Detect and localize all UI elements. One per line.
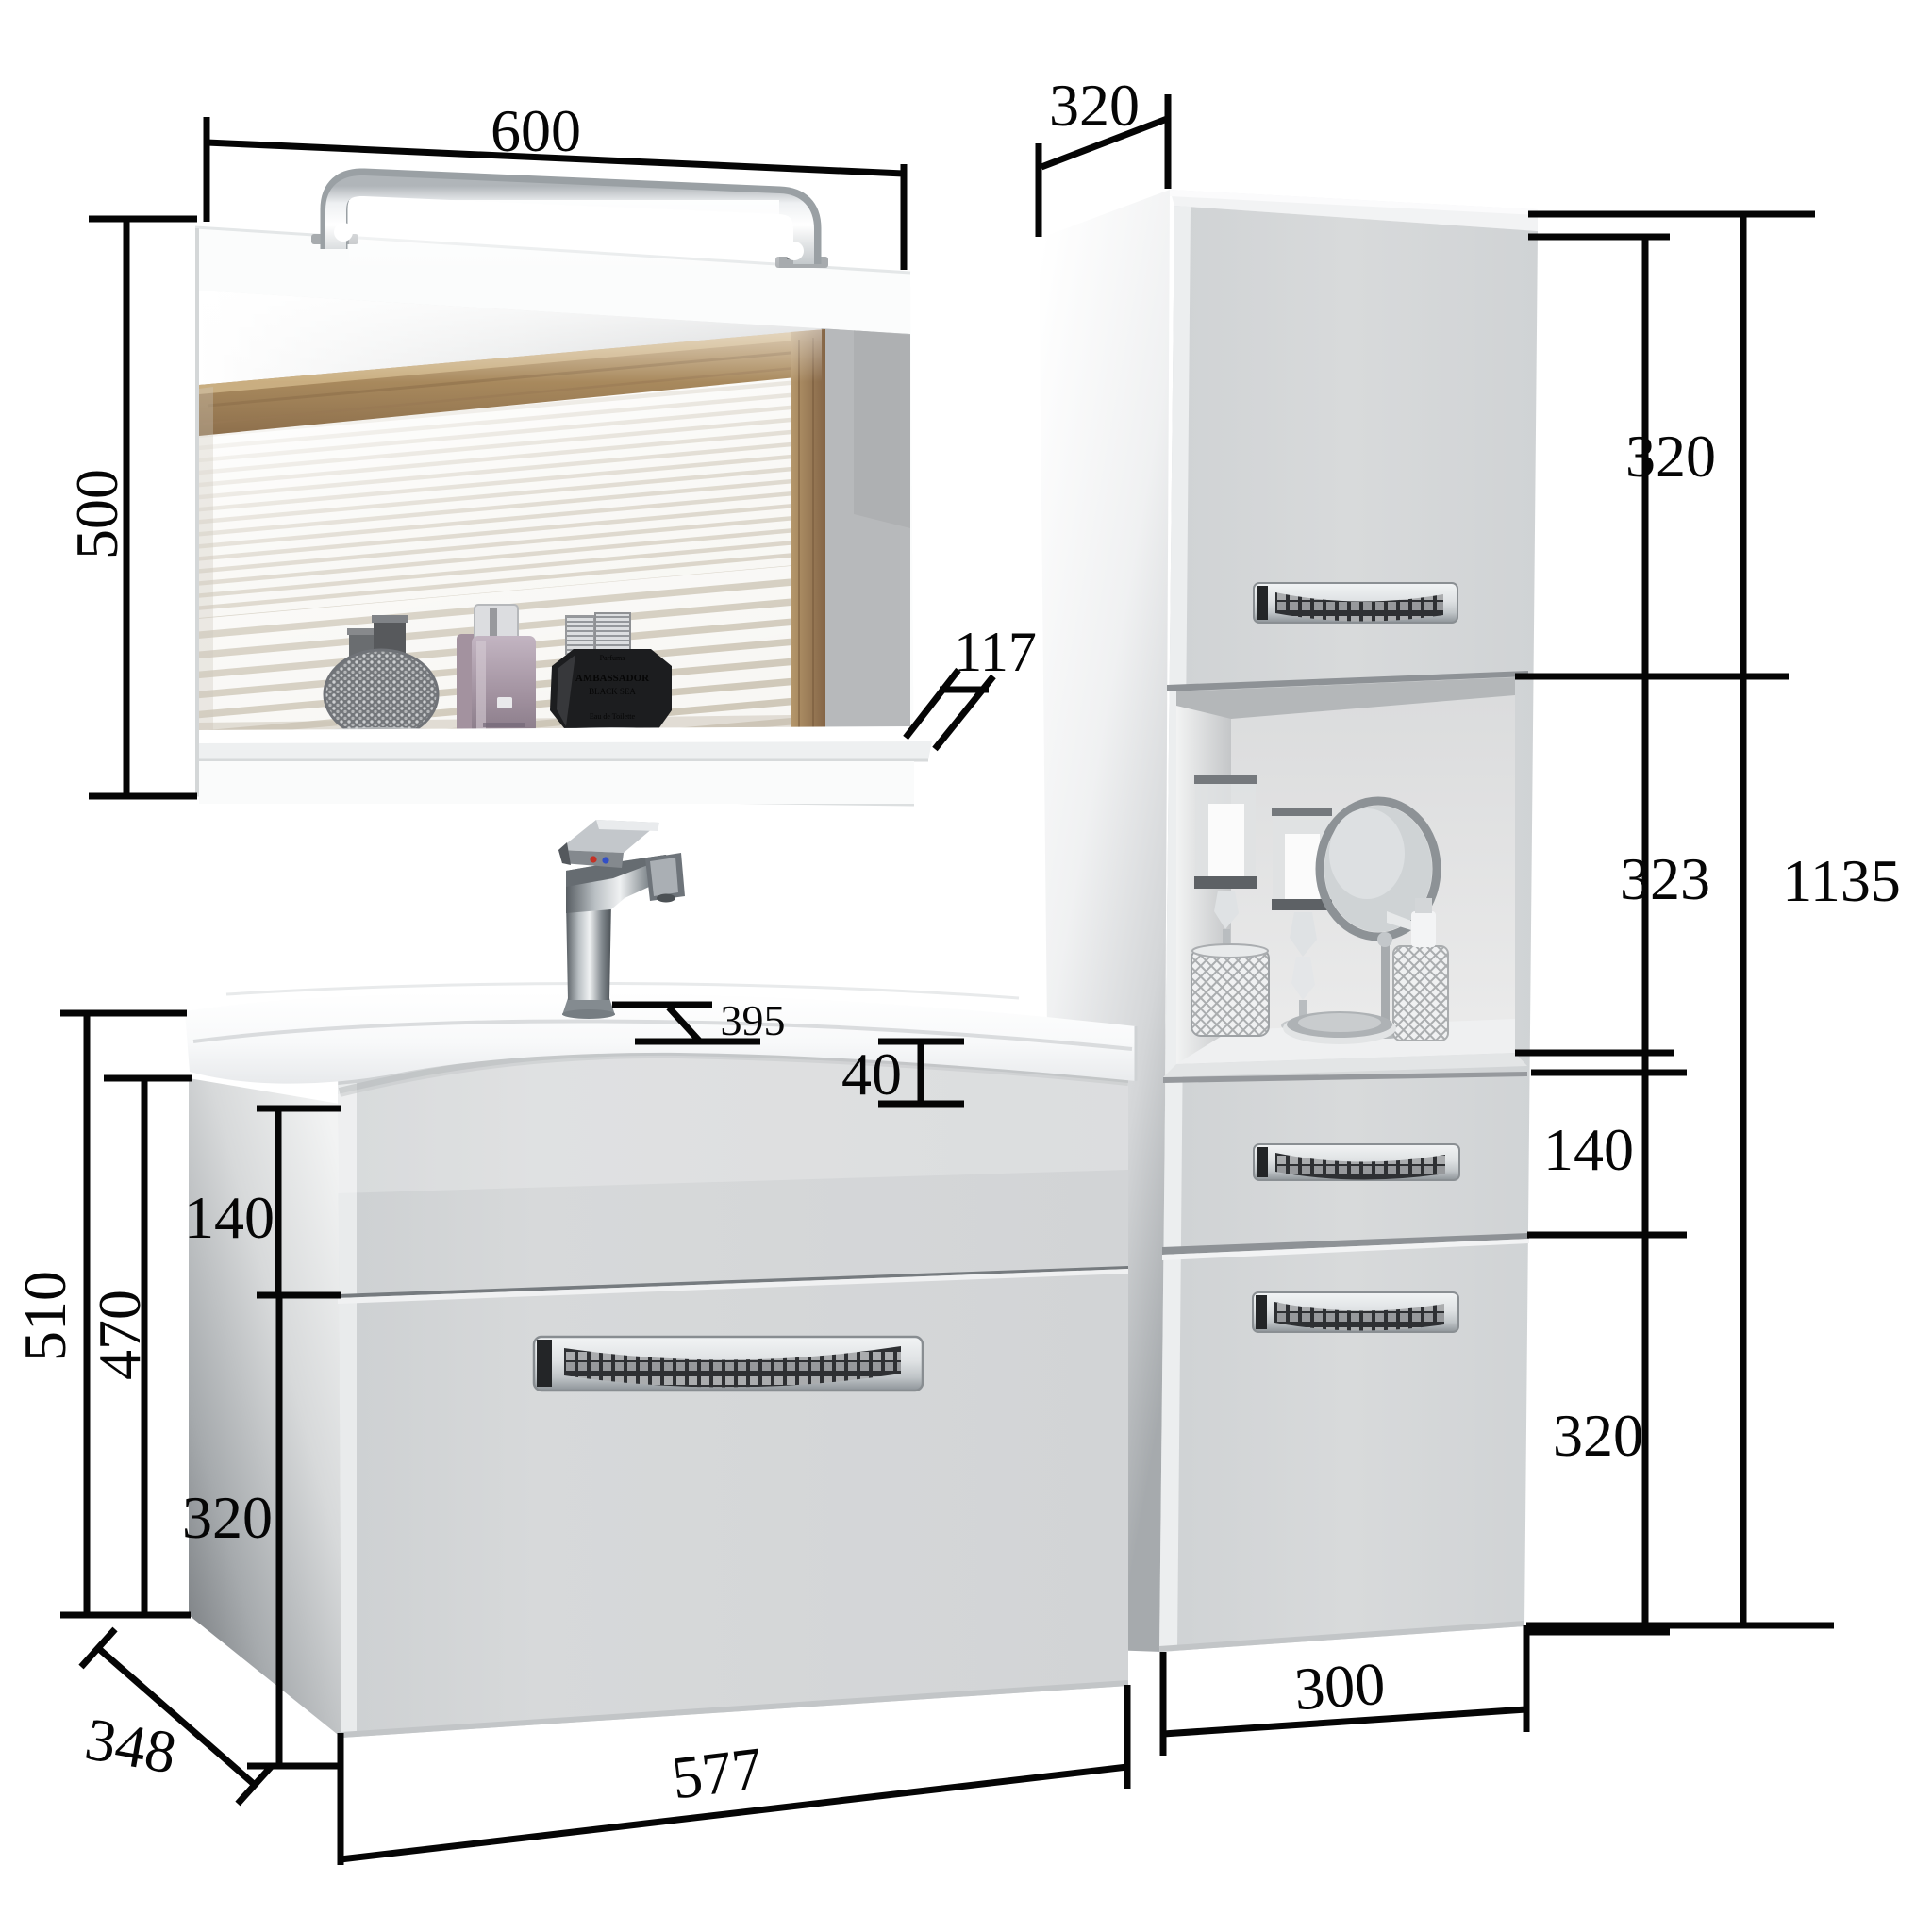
svg-text:395: 395	[721, 996, 786, 1044]
svg-text:AMBASSADOR: AMBASSADOR	[575, 673, 650, 684]
svg-text:140: 140	[1543, 1116, 1634, 1183]
svg-text:Eau de Toilette: Eau de Toilette	[590, 712, 636, 721]
svg-text:320: 320	[1049, 72, 1140, 139]
svg-text:320: 320	[182, 1484, 273, 1551]
svg-text:510: 510	[11, 1271, 78, 1361]
svg-text:140: 140	[184, 1184, 275, 1251]
svg-text:Parfums: Parfums	[600, 654, 625, 662]
svg-text:320: 320	[1553, 1402, 1643, 1469]
svg-text:323: 323	[1620, 845, 1710, 912]
svg-text:577: 577	[668, 1734, 766, 1811]
svg-text:600: 600	[491, 97, 581, 164]
svg-text:300: 300	[1292, 1650, 1388, 1724]
svg-text:40: 40	[841, 1041, 902, 1108]
svg-text:320: 320	[1625, 423, 1716, 490]
svg-text:BLACK SEA: BLACK SEA	[589, 687, 636, 696]
svg-text:500: 500	[63, 469, 130, 559]
svg-text:1135: 1135	[1782, 847, 1901, 914]
svg-text:470: 470	[86, 1290, 153, 1380]
svg-text:117: 117	[954, 621, 1037, 683]
